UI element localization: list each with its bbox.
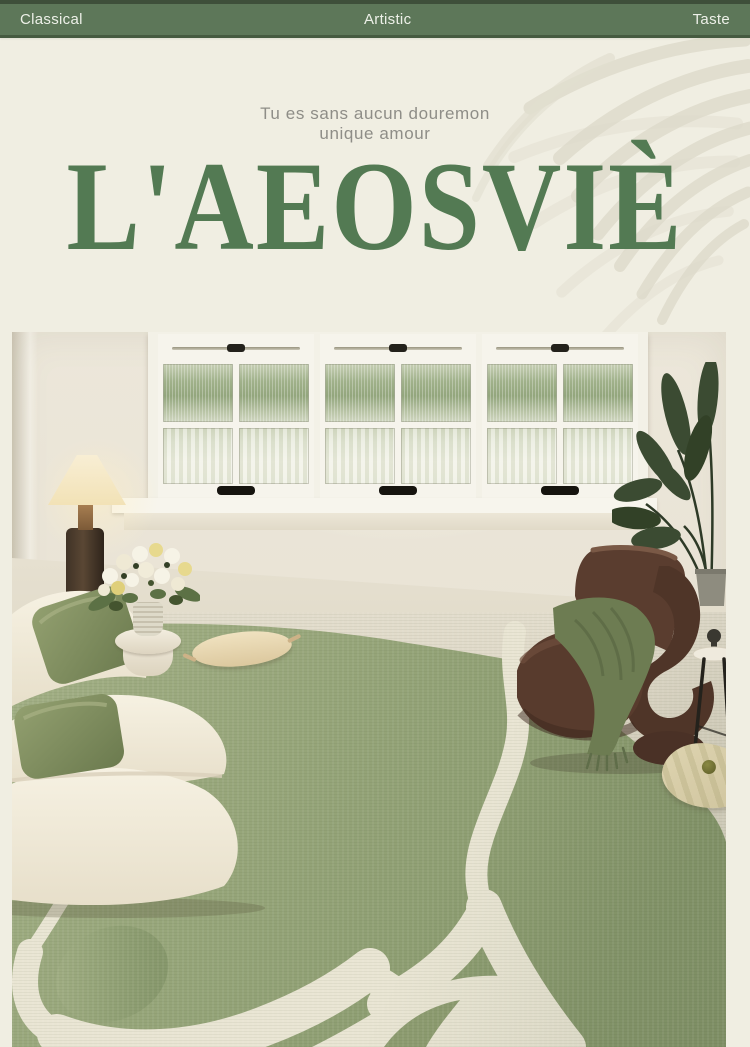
- window-sash: [320, 334, 476, 498]
- promo-banner: Classical Artistic Taste: [0, 0, 750, 1047]
- window-latch-icon: [541, 486, 579, 495]
- window-hardware-icon: [551, 344, 569, 352]
- brown-sculptural-lounge-chair: [517, 542, 717, 774]
- hero-section: Tu es sans aucun douremon unique amour L…: [0, 38, 750, 332]
- top-bar-label-classical: Classical: [20, 11, 83, 28]
- top-bar-label-artistic: Artistic: [364, 11, 411, 28]
- hero-photo: [12, 332, 726, 1047]
- tagline: Tu es sans aucun douremon unique amour: [0, 38, 750, 145]
- lamp-neck: [78, 504, 93, 530]
- top-bar: Classical Artistic Taste: [0, 0, 750, 38]
- window-latch-icon: [217, 486, 255, 495]
- window-apron: [124, 513, 644, 530]
- brand-title: L'AEOSVIÈ: [0, 142, 750, 270]
- window-latch-icon: [379, 486, 417, 495]
- window-panes: [163, 364, 309, 484]
- window-hardware-icon: [227, 344, 245, 352]
- tagline-line-1: Tu es sans aucun douremon: [0, 104, 750, 124]
- window-sill: [112, 498, 657, 513]
- window-hardware-icon: [389, 344, 407, 352]
- top-bar-label-taste: Taste: [693, 11, 730, 28]
- casement-windows: [148, 332, 648, 498]
- window-rail: [163, 484, 309, 498]
- pillow-button: [701, 759, 718, 776]
- flower-bouquet: [88, 536, 200, 628]
- window-transom: [163, 334, 309, 364]
